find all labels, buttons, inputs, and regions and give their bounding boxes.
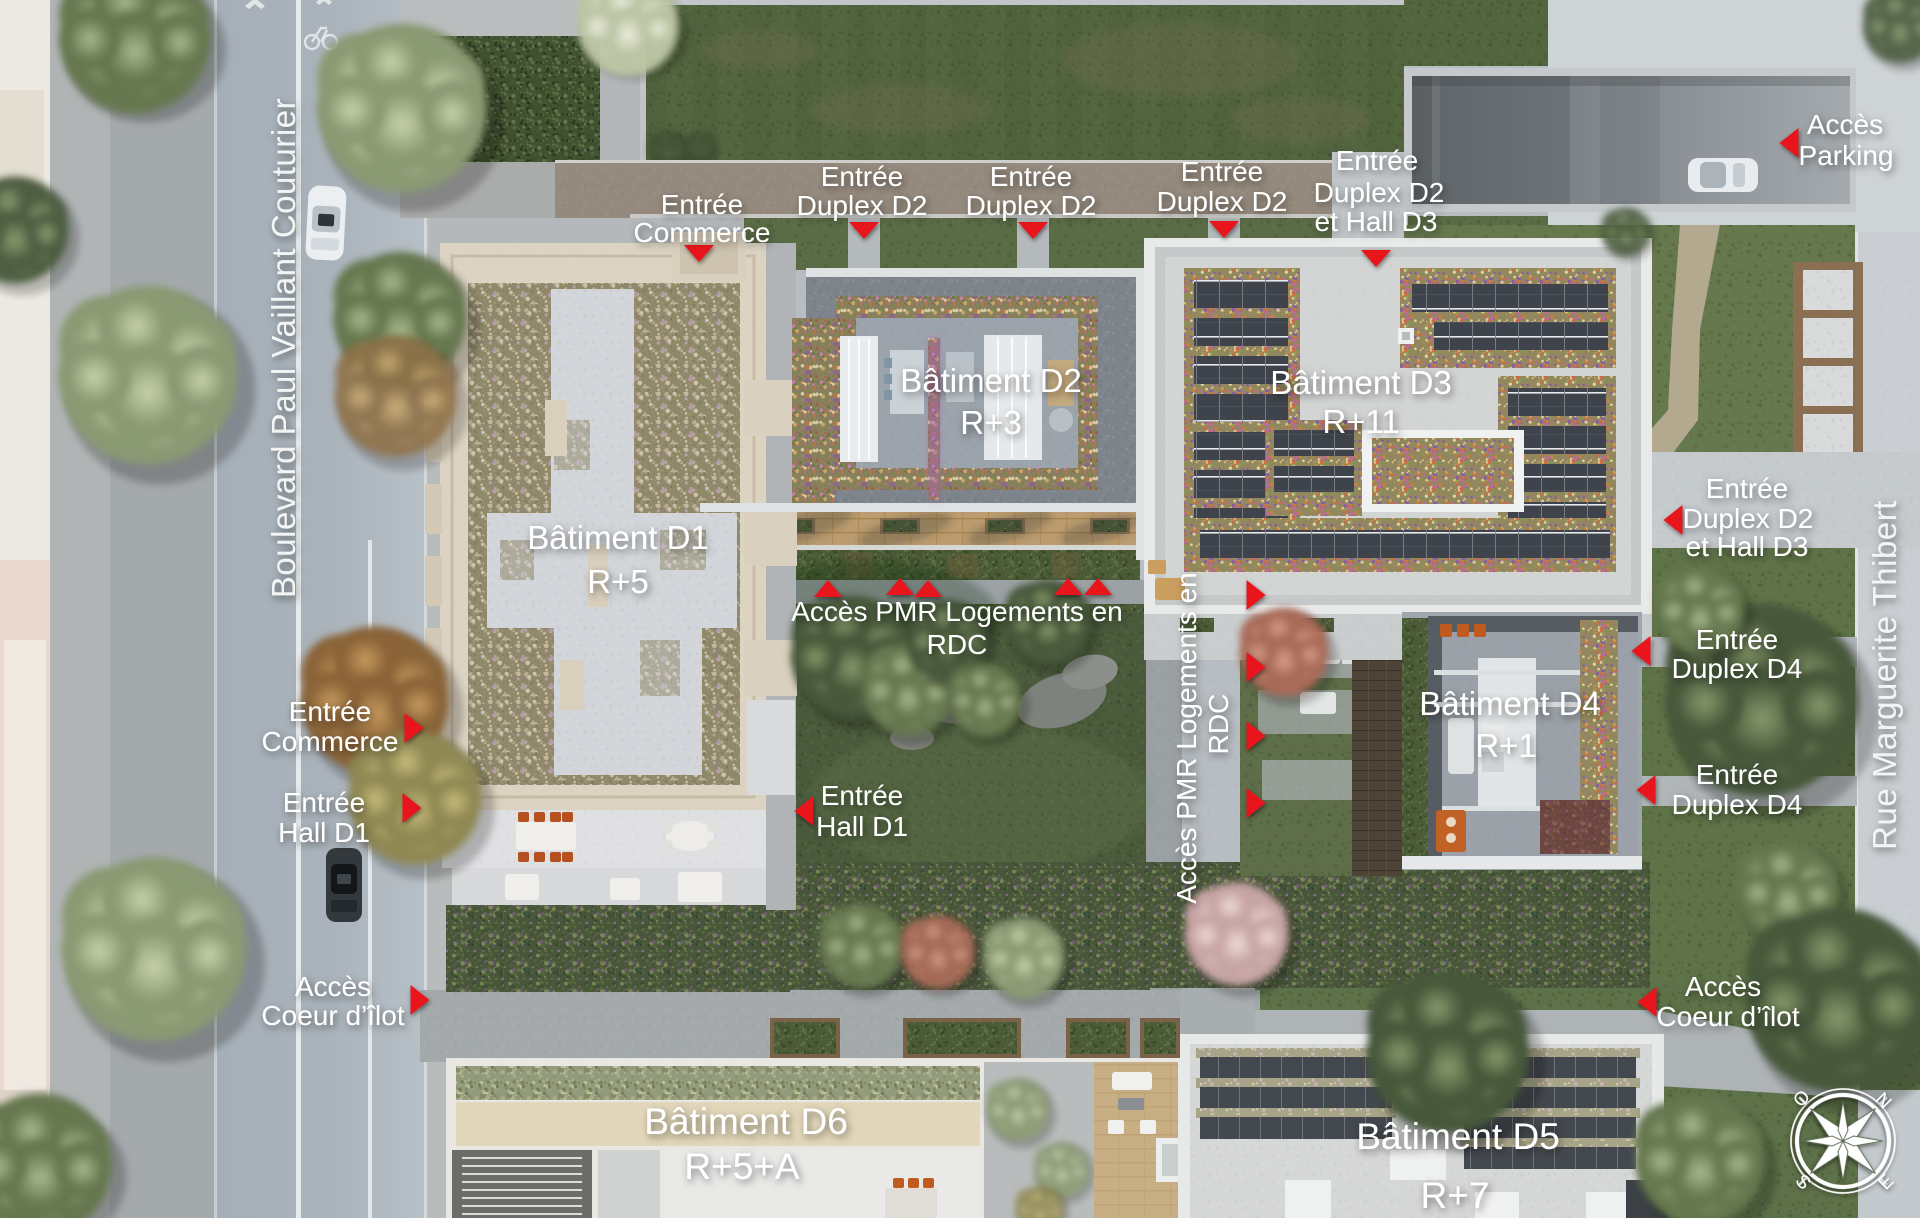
svg-text:Accès: Accès (1807, 109, 1883, 140)
svg-text:Bâtiment D1: Bâtiment D1 (527, 519, 709, 556)
svg-text:Hall D1: Hall D1 (816, 811, 908, 842)
svg-text:R+5: R+5 (587, 563, 648, 600)
svg-text:Duplex D2: Duplex D2 (1314, 177, 1445, 208)
svg-text:Accès: Accès (1685, 971, 1761, 1002)
svg-text:Entrée: Entrée (1706, 473, 1789, 504)
svg-text:Duplex D4: Duplex D4 (1672, 789, 1803, 820)
svg-text:Entrée: Entrée (1696, 624, 1779, 655)
svg-text:Entrée: Entrée (990, 161, 1073, 192)
svg-text:Bâtiment D6: Bâtiment D6 (644, 1101, 848, 1142)
svg-text:Duplex D4: Duplex D4 (1672, 653, 1803, 684)
svg-text:R+1: R+1 (1475, 727, 1536, 764)
svg-text:R+7: R+7 (1421, 1175, 1490, 1216)
svg-text:Hall D1: Hall D1 (278, 817, 370, 848)
svg-text:RDC: RDC (927, 629, 988, 660)
svg-text:Parking: Parking (1799, 140, 1894, 171)
svg-text:Duplex D2: Duplex D2 (1683, 503, 1814, 534)
svg-text:Entrée: Entrée (289, 696, 372, 727)
svg-text:Boulevard Paul Vaillant Coutur: Boulevard Paul Vaillant Couturier (265, 98, 302, 598)
svg-text:R+11: R+11 (1322, 403, 1399, 440)
svg-text:Bâtiment D2: Bâtiment D2 (900, 362, 1082, 399)
svg-text:Duplex D2: Duplex D2 (797, 190, 928, 221)
svg-text:Entrée: Entrée (1181, 156, 1264, 187)
svg-text:R+3: R+3 (960, 404, 1021, 441)
svg-text:Coeur d’îlot: Coeur d’îlot (1656, 1001, 1799, 1032)
svg-text:Commerce: Commerce (262, 726, 399, 757)
svg-text:Coeur d’îlot: Coeur d’îlot (261, 1000, 404, 1031)
svg-text:Commerce: Commerce (634, 217, 771, 248)
svg-text:Bâtiment D3: Bâtiment D3 (1270, 364, 1452, 401)
svg-text:Entrée: Entrée (1696, 759, 1779, 790)
svg-text:Accès PMR Logements en: Accès PMR Logements en (791, 596, 1123, 627)
svg-text:et Hall D3: et Hall D3 (1315, 206, 1438, 237)
svg-text:Duplex D2: Duplex D2 (966, 190, 1097, 221)
svg-text:Bâtiment D4: Bâtiment D4 (1419, 685, 1601, 722)
svg-text:Accès PMR Logements en: Accès PMR Logements en (1171, 572, 1202, 904)
svg-text:Entrée: Entrée (283, 787, 366, 818)
svg-text:Accès: Accès (295, 971, 371, 1002)
svg-text:et Hall D3: et Hall D3 (1686, 531, 1809, 562)
svg-text:Duplex D2: Duplex D2 (1157, 186, 1288, 217)
svg-text:Rue Marguerite Thibert: Rue Marguerite Thibert (1866, 500, 1903, 850)
svg-text:R+5+A: R+5+A (684, 1146, 800, 1187)
svg-text:Bâtiment D5: Bâtiment D5 (1356, 1116, 1560, 1157)
svg-text:Entrée: Entrée (1336, 145, 1419, 176)
svg-text:Entrée: Entrée (661, 189, 744, 220)
svg-text:Entrée: Entrée (821, 780, 904, 811)
svg-text:Entrée: Entrée (821, 161, 904, 192)
svg-text:RDC: RDC (1203, 694, 1234, 755)
